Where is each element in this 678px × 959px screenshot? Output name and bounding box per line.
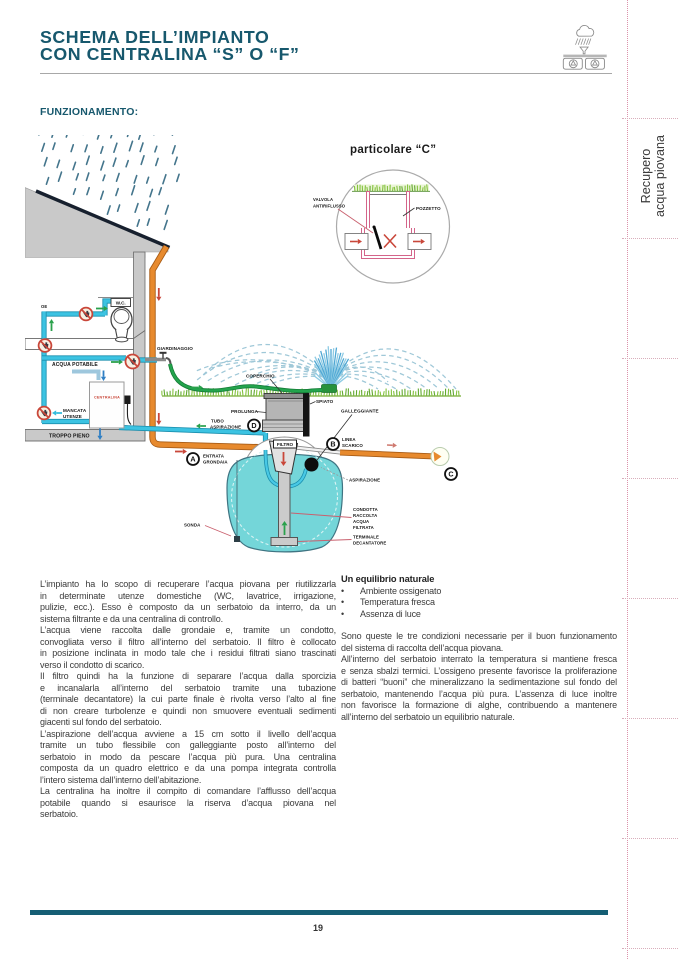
svg-text:VALVOLA: VALVOLA: [313, 197, 333, 202]
svg-text:DECANTATORE: DECANTATORE: [353, 541, 386, 546]
svg-text:W.C.: W.C.: [116, 301, 126, 306]
svg-text:POZZETTO: POZZETTO: [416, 206, 441, 211]
svg-text:C: C: [448, 470, 453, 479]
svg-text:FILTRO: FILTRO: [277, 442, 294, 447]
svg-text:ANTIRIFLUSSO: ANTIRIFLUSSO: [313, 204, 346, 209]
svg-text:OE: OE: [41, 304, 47, 309]
svg-text:TERMINALE: TERMINALE: [353, 535, 379, 540]
svg-text:GRONDAIA: GRONDAIA: [203, 460, 228, 465]
svg-text:SPIATO: SPIATO: [316, 399, 334, 404]
svg-text:MANCATA: MANCATA: [63, 408, 87, 413]
svg-text:GALLEGGIANTE: GALLEGGIANTE: [341, 409, 379, 414]
svg-text:FILTRATA: FILTRATA: [353, 525, 374, 530]
svg-text:PROLUNGA: PROLUNGA: [231, 409, 259, 414]
svg-text:SONDA: SONDA: [184, 523, 201, 528]
svg-text:B: B: [330, 440, 335, 449]
svg-text:ASPIRAZIONE: ASPIRAZIONE: [349, 478, 380, 483]
svg-text:CONDOTTA: CONDOTTA: [353, 507, 378, 512]
svg-text:COPERCHIO: COPERCHIO: [246, 374, 275, 379]
svg-text:ACQUA: ACQUA: [353, 519, 369, 524]
svg-text:SCARICO: SCARICO: [342, 443, 363, 448]
svg-text:RACCOLTA: RACCOLTA: [353, 513, 377, 518]
svg-text:UTENZE: UTENZE: [63, 414, 82, 419]
svg-text:LINEA: LINEA: [342, 437, 356, 442]
svg-text:GIARDINAGGIO: GIARDINAGGIO: [157, 346, 193, 351]
svg-text:TUBO: TUBO: [211, 419, 224, 424]
svg-text:particolare “C”: particolare “C”: [350, 144, 436, 156]
svg-text:D: D: [251, 421, 256, 430]
svg-text:ACQUA POTABILE: ACQUA POTABILE: [52, 362, 98, 368]
svg-text:ASPIRAZIONE: ASPIRAZIONE: [210, 425, 241, 430]
svg-text:ENTRATA: ENTRATA: [203, 454, 225, 459]
svg-text:TROPPO PIENO: TROPPO PIENO: [49, 434, 90, 440]
svg-text:A: A: [190, 455, 195, 464]
svg-text:CENTRALINA: CENTRALINA: [94, 395, 120, 399]
